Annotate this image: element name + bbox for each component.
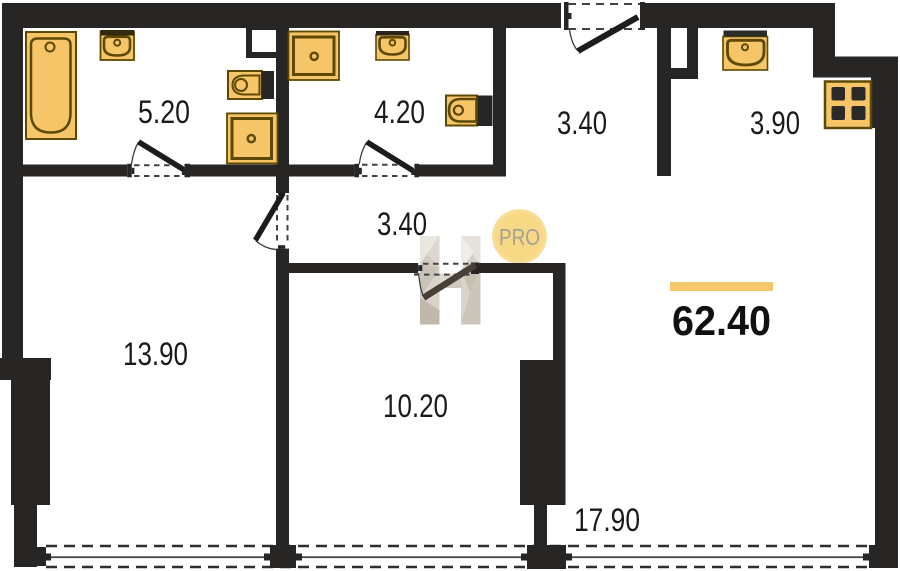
svg-text:4.20: 4.20 (374, 94, 425, 130)
svg-text:3.90: 3.90 (750, 105, 800, 141)
svg-text:13.90: 13.90 (123, 336, 188, 372)
svg-text:3.40: 3.40 (557, 105, 607, 141)
svg-text:10.20: 10.20 (383, 388, 448, 424)
svg-text:5.20: 5.20 (138, 94, 190, 130)
svg-text:3.40: 3.40 (377, 206, 427, 242)
svg-text:PRO: PRO (499, 224, 540, 250)
svg-text:17.90: 17.90 (574, 502, 640, 538)
svg-text:62.40: 62.40 (672, 297, 771, 344)
